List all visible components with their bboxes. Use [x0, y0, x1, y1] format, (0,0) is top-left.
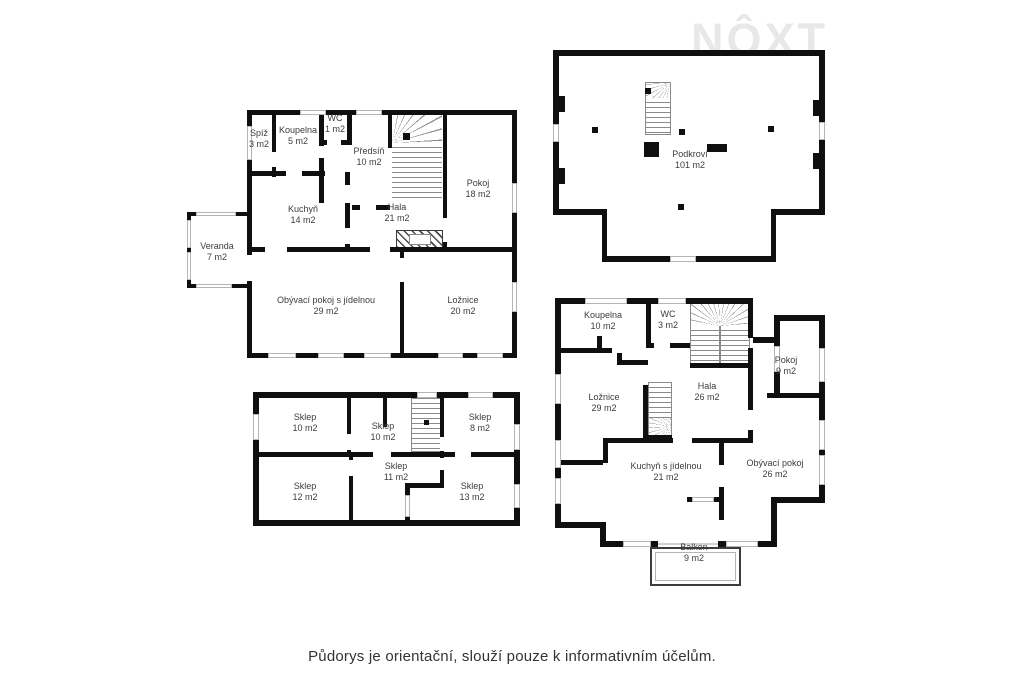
room-name: Ložnice [398, 295, 528, 306]
stair-post [645, 88, 651, 94]
room-label: Veranda7 m2 [152, 241, 282, 263]
wall [813, 100, 819, 116]
window [658, 298, 686, 304]
window [318, 353, 344, 358]
room-label: Sklep8 m2 [415, 412, 545, 434]
wall [592, 127, 598, 133]
room-label: Předsíň10 m2 [304, 146, 434, 168]
room-label: Ložnice20 m2 [398, 295, 528, 317]
room-name: WC [603, 309, 733, 320]
room-label: Sklep11 m2 [331, 461, 461, 483]
wall [512, 110, 517, 358]
room-label: WC1 m2 [270, 113, 400, 135]
room-label: WC3 m2 [603, 309, 733, 331]
wall [559, 96, 565, 112]
room-area: 18 m2 [413, 189, 543, 200]
room-label: Podkroví101 m2 [625, 149, 755, 171]
wall [617, 360, 648, 365]
room-name: WC [270, 113, 400, 124]
room-name: Pokoj [721, 355, 851, 366]
under-stairs-opening [409, 234, 431, 245]
window [477, 353, 503, 358]
wall [602, 209, 607, 262]
small-stairs-winder-icon [649, 418, 671, 435]
wall [774, 497, 825, 503]
wall [553, 209, 607, 215]
window [417, 392, 437, 398]
room-area: 26 m2 [710, 469, 840, 480]
wall [253, 520, 520, 526]
room-area: 26 m2 [642, 392, 772, 403]
room-name: Pokoj [413, 178, 543, 189]
window [555, 478, 561, 504]
room-label: Hala21 m2 [332, 202, 462, 224]
disclaimer-caption: Půdorys je orientační, slouží pouze k in… [0, 648, 1024, 665]
room-name: Veranda [152, 241, 282, 252]
wall [774, 315, 825, 321]
room-area: 9 m2 [629, 553, 759, 564]
room-label: Pokoj18 m2 [413, 178, 543, 200]
floor-plan-sheet: NÔXT Půdorys je orientační, slouží pouze… [0, 0, 1024, 683]
room-area: 9 m2 [721, 366, 851, 377]
room-area: 8 m2 [415, 423, 545, 434]
room-name: Předsíň [304, 146, 434, 157]
door-opening [400, 258, 404, 282]
wall [771, 209, 776, 262]
door-opening [286, 171, 302, 176]
window [819, 122, 825, 140]
window [468, 392, 493, 398]
door-opening [272, 152, 276, 167]
room-name: Sklep [407, 481, 537, 492]
window [692, 497, 714, 502]
window [364, 353, 391, 358]
wall [553, 50, 825, 56]
room-name: Sklep [415, 412, 545, 423]
room-area: 20 m2 [398, 306, 528, 317]
wall [555, 522, 606, 528]
room-area: 10 m2 [304, 157, 434, 168]
wall [597, 336, 602, 353]
door-opening [612, 348, 630, 353]
stair-post [403, 133, 410, 140]
room-area: 21 m2 [332, 213, 462, 224]
room-area: 7 m2 [152, 252, 282, 263]
door-opening [748, 410, 753, 430]
door-opening [455, 452, 471, 457]
room-area: 3 m2 [603, 320, 733, 331]
wall [679, 129, 685, 135]
window [196, 212, 236, 216]
window [585, 298, 627, 304]
room-area: 29 m2 [539, 403, 669, 414]
wall [748, 298, 753, 338]
room-area: 13 m2 [407, 492, 537, 503]
room-area: 12 m2 [240, 492, 370, 503]
room-name: Podkroví [625, 149, 755, 160]
room-label: Sklep12 m2 [240, 481, 370, 503]
wall [771, 497, 777, 547]
room-name: Hala [332, 202, 462, 213]
door-opening [345, 228, 350, 244]
door-opening [654, 343, 670, 348]
wall [555, 460, 603, 465]
room-area: 101 m2 [625, 160, 755, 171]
window [268, 353, 296, 358]
room-name: Balkon [629, 542, 759, 553]
door-opening [673, 438, 692, 443]
wall [768, 126, 774, 132]
door-opening [345, 185, 350, 203]
room-label: Pokoj9 m2 [721, 355, 851, 377]
window [553, 124, 559, 142]
room-label: Sklep13 m2 [407, 481, 537, 503]
window [670, 256, 696, 262]
wall [603, 438, 608, 463]
wall [678, 204, 684, 210]
room-area: 1 m2 [270, 124, 400, 135]
window [196, 284, 232, 288]
room-name: Sklep [331, 461, 461, 472]
door-opening [373, 452, 391, 457]
window [555, 440, 561, 468]
room-label: Balkon9 m2 [629, 542, 759, 564]
room-label: Obývací pokoj26 m2 [710, 458, 840, 480]
wall [559, 168, 565, 184]
window [819, 420, 825, 450]
door-opening [370, 247, 390, 252]
wall [776, 209, 825, 215]
room-area: 29 m2 [261, 306, 391, 317]
stairs-icon [646, 98, 670, 134]
window [438, 353, 463, 358]
room-label: Obývací pokoj s jídelnou29 m2 [261, 295, 391, 317]
room-name: Obývací pokoj [710, 458, 840, 469]
room-name: Obývací pokoj s jídelnou [261, 295, 391, 306]
room-label: Hala26 m2 [642, 381, 772, 403]
room-name: Hala [642, 381, 772, 392]
wall [813, 153, 819, 169]
